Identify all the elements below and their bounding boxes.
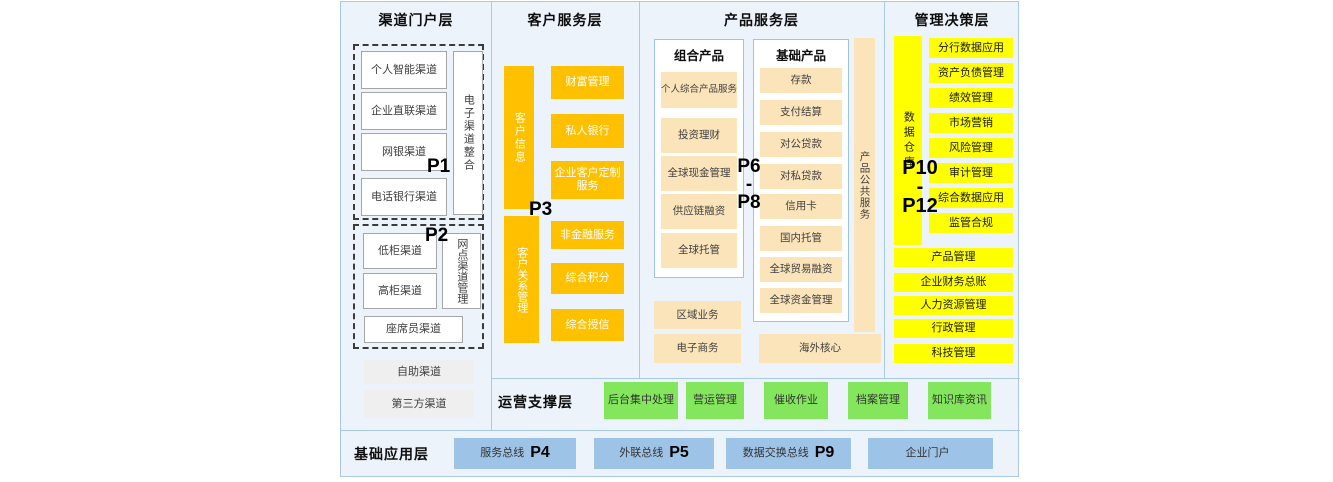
product-node: 对公贷款	[760, 132, 842, 157]
layer-title-customer: 客户服务层	[491, 10, 639, 30]
p2-tag: P2	[425, 226, 448, 245]
bus-node: 服务总线 P4	[454, 438, 576, 469]
management-node: 资产负债管理	[929, 63, 1013, 83]
layer-title-product: 产品服务层	[639, 10, 884, 30]
product-node: 全球资金管理	[760, 288, 842, 313]
layer-title-channel: 渠道门户层	[341, 10, 491, 30]
management-node: 风险管理	[929, 138, 1013, 158]
bus-node: 企业门户	[868, 438, 993, 469]
product-node: 区域业务	[654, 301, 741, 329]
customer-crm-bar: 客户关系管理	[504, 216, 539, 343]
channel-node: 企业直联渠道	[361, 92, 447, 130]
customer-node: 财富管理	[551, 66, 624, 99]
divider	[491, 378, 1020, 379]
customer-node: 私人银行	[551, 114, 624, 148]
architecture-diagram: 渠道门户层 个人智能渠道 企业直联渠道 网银渠道 电话银行渠道 电子渠道整合 P…	[340, 1, 1019, 477]
p9-tag: P9	[815, 444, 835, 462]
operation-node: 档案管理	[848, 382, 908, 419]
bus-label: 企业门户	[906, 447, 950, 460]
customer-info-bar: 客户信息	[504, 66, 534, 209]
operation-node: 催收作业	[764, 382, 828, 419]
management-node: 产品管理	[894, 248, 1013, 267]
channel-side-bar: 电子渠道整合	[453, 51, 483, 215]
management-node: 人力资源管理	[894, 296, 1013, 315]
panel-title: 基础产品	[754, 46, 848, 62]
channel-node: 座席员渠道	[364, 316, 463, 343]
product-node: 对私贷款	[760, 164, 842, 189]
divider	[639, 2, 640, 378]
management-node: 科技管理	[894, 344, 1013, 363]
bus-node: 数据交换总线 P9	[726, 438, 851, 469]
bus-node: 外联总线 P5	[594, 438, 714, 469]
channel-node: 电话银行渠道	[361, 178, 447, 216]
product-node: 电子商务	[654, 334, 741, 363]
customer-node: 非金融服务	[551, 221, 624, 249]
bus-label: 数据交换总线	[743, 447, 809, 460]
banking-architecture-screenshot: { "colors": { "background": "#edf3fa", "…	[0, 0, 1333, 482]
product-node: 海外核心	[759, 334, 881, 363]
channel-node: 自助渠道	[364, 360, 474, 384]
product-node: 供应链融资	[661, 194, 737, 229]
management-node: 绩效管理	[929, 88, 1013, 108]
bus-label: 外联总线	[619, 447, 663, 460]
product-node: 全球现金管理	[661, 156, 737, 191]
product-node: 投资理财	[661, 118, 737, 153]
management-node: 监管合规	[929, 213, 1013, 233]
product-node: 全球贸易融资	[760, 257, 842, 282]
product-node: 支付结算	[760, 100, 842, 125]
p3-tag: P3	[529, 200, 552, 219]
product-node: 全球托管	[661, 233, 737, 268]
layer-title-operation: 运营支撑层	[498, 392, 573, 412]
operation-node: 后台集中处理	[604, 382, 678, 419]
panel-title: 组合产品	[655, 46, 743, 62]
product-node: 信用卡	[760, 194, 842, 219]
p5-tag: P5	[669, 444, 689, 462]
p4-tag: P4	[530, 444, 550, 462]
customer-node: 综合授信	[551, 309, 624, 341]
divider	[884, 2, 885, 378]
layer-title-foundation: 基础应用层	[354, 444, 429, 464]
customer-node: 企业客户定制服务	[551, 161, 624, 199]
channel-node: 高柜渠道	[363, 273, 437, 309]
management-node: 行政管理	[894, 319, 1013, 338]
product-node: 个人综合产品服务	[661, 72, 737, 108]
management-node: 市场营销	[929, 113, 1013, 133]
product-node: 国内托管	[760, 226, 842, 251]
p6-p8-tag: P6 - P8	[735, 158, 763, 212]
management-node: 分行数据应用	[929, 38, 1013, 58]
product-common-bar: 产品公共服务	[854, 38, 875, 332]
layer-title-management: 管理决策层	[884, 10, 1020, 30]
operation-node: 知识库资讯	[928, 382, 991, 419]
p-tag-bottom: P8	[737, 194, 760, 212]
bus-label: 服务总线	[480, 447, 524, 460]
divider	[491, 2, 492, 430]
product-node: 存款	[760, 68, 842, 93]
operation-node: 营运管理	[686, 382, 744, 419]
channel-node: 第三方渠道	[364, 390, 474, 418]
management-node: 企业财务总账	[894, 273, 1013, 292]
divider	[341, 430, 1020, 431]
customer-node: 综合积分	[551, 263, 624, 294]
p1-tag: P1	[427, 157, 450, 176]
p10-p12-tag: P10 - P12	[891, 159, 949, 216]
p-tag-bottom: P12	[902, 197, 938, 216]
channel-node: 个人智能渠道	[361, 51, 447, 89]
